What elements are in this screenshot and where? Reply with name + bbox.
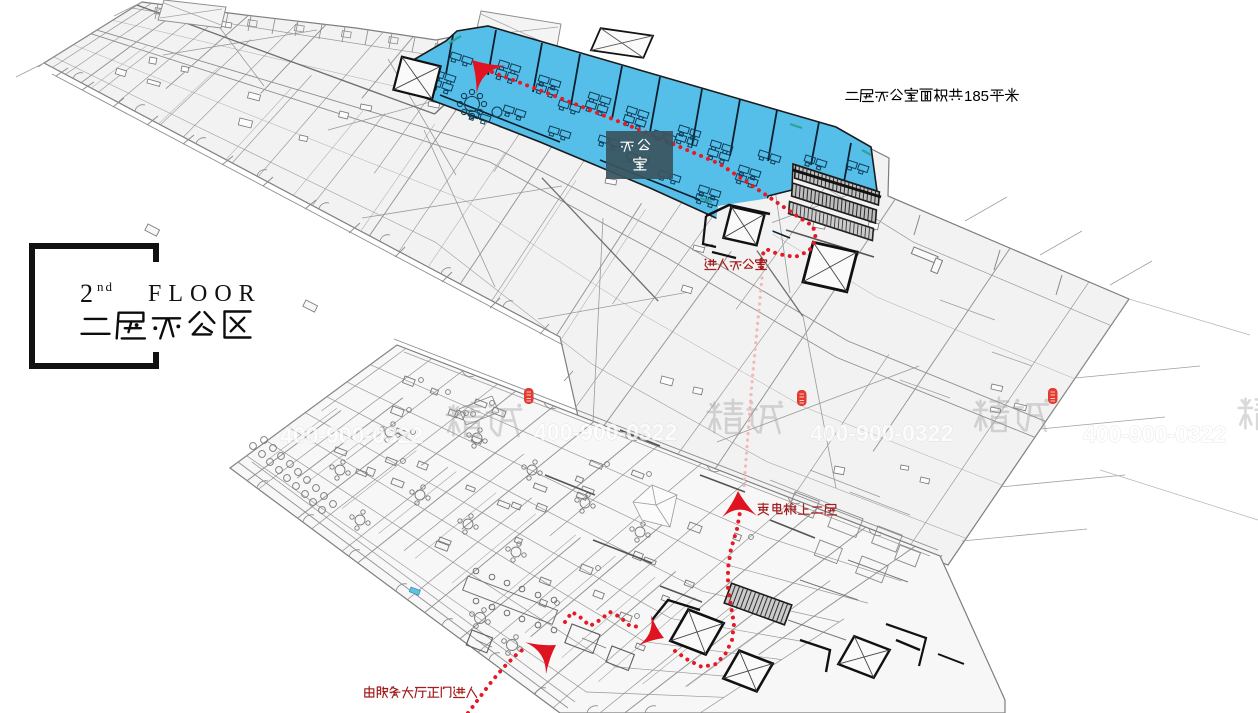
svg-text:185: 185 [964, 88, 989, 105]
svg-text:400-900-0322: 400-900-0322 [280, 422, 423, 448]
svg-text:400-900-0322: 400-900-0322 [534, 419, 677, 445]
svg-text:FLOOR: FLOOR [148, 281, 262, 307]
svg-text:nd: nd [97, 279, 114, 294]
svg-text:400-900-0322: 400-900-0322 [810, 420, 953, 446]
svg-text:400-900-0322: 400-900-0322 [1083, 421, 1226, 447]
svg-text:2: 2 [80, 279, 93, 308]
